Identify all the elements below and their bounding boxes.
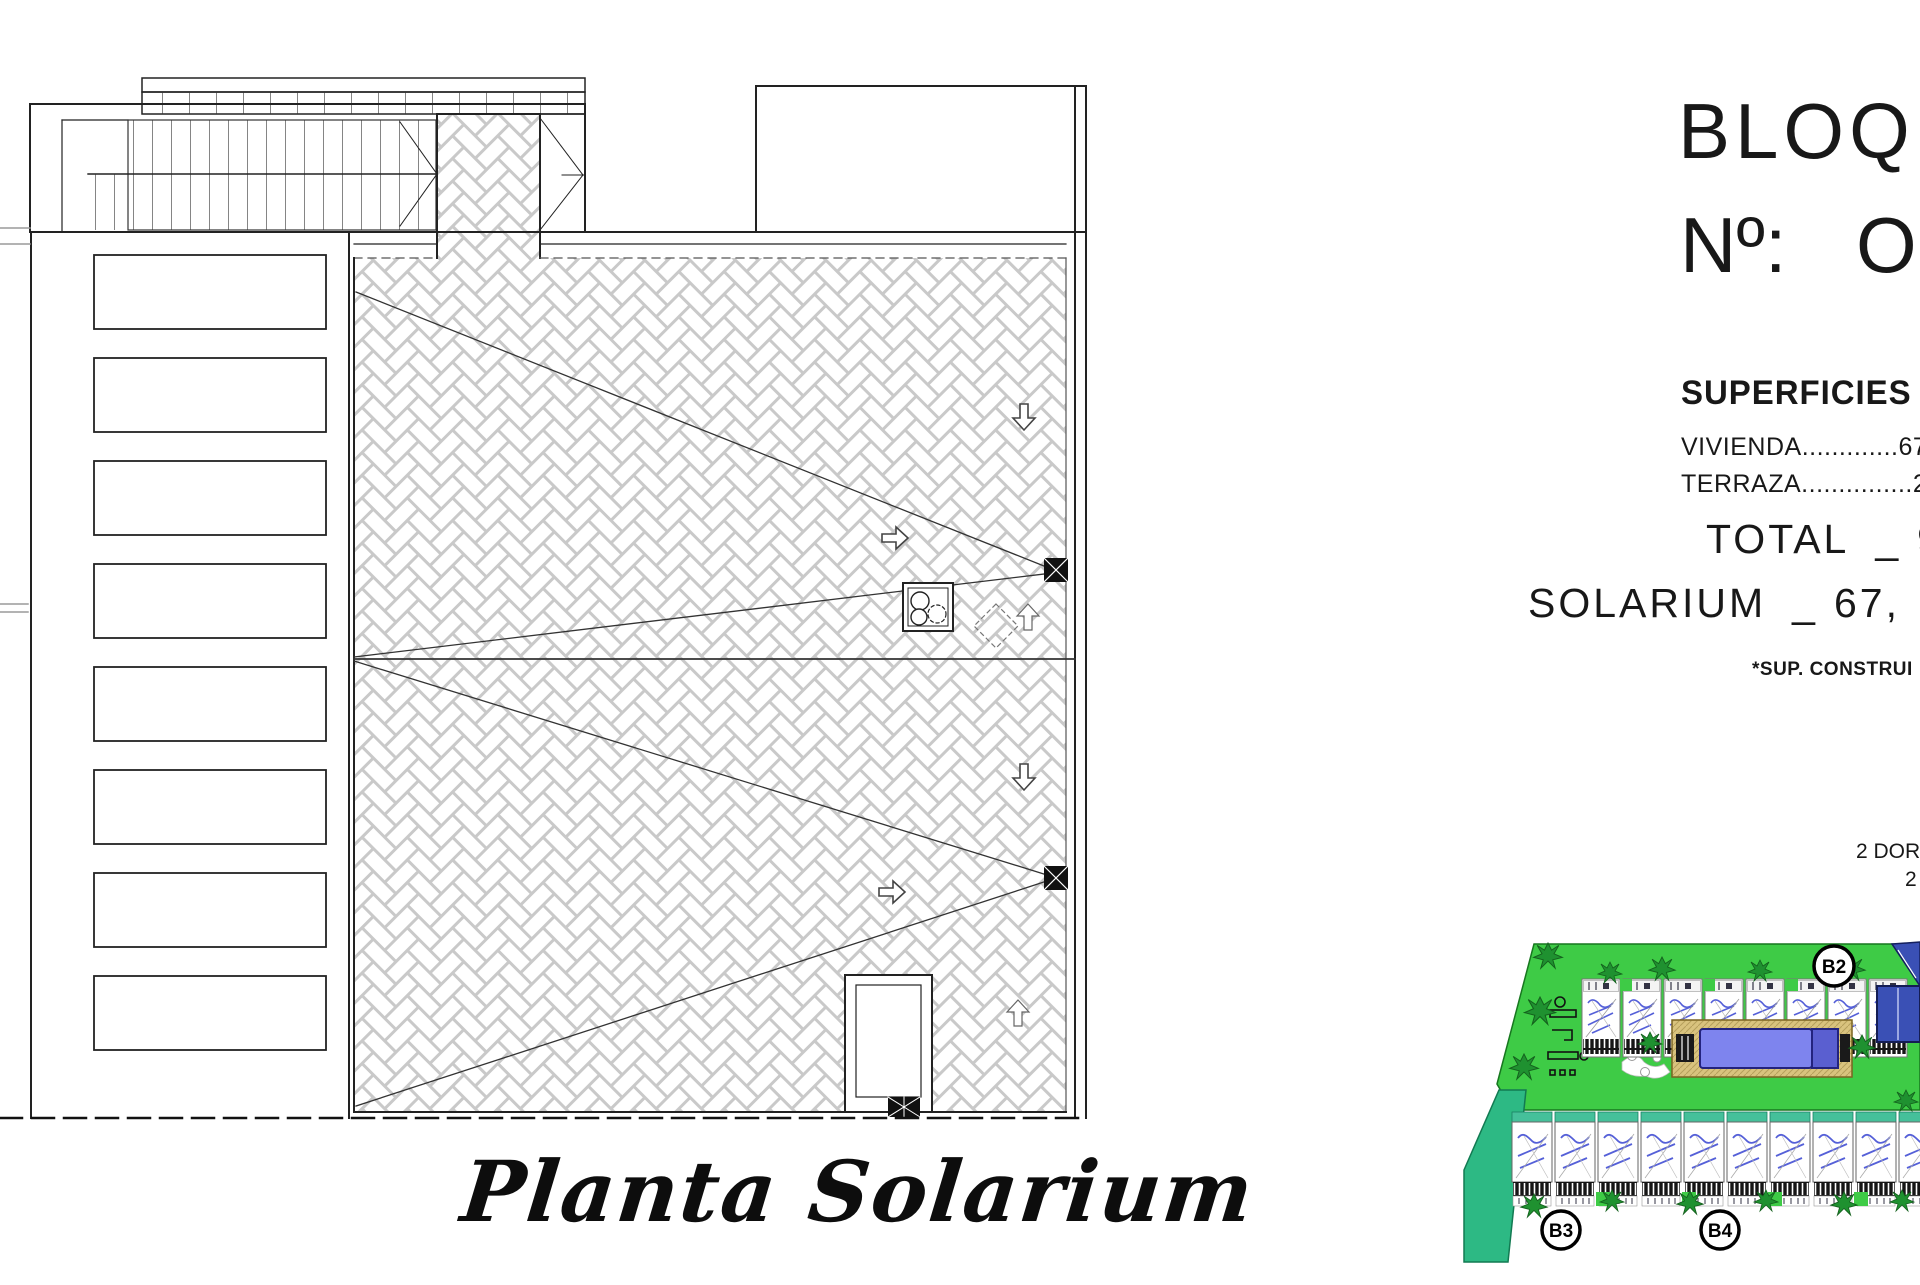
built-surface-note: *SUP. CONSTRUI (1752, 659, 1913, 681)
total-label: TOTAL (1706, 516, 1849, 563)
total-line: TOTAL _ 94 (1706, 516, 1920, 563)
roof-access-door (845, 975, 932, 1117)
superficies-heading: SUPERFICIES (1681, 374, 1912, 413)
total-separator: _ (1875, 516, 1901, 563)
louvre-panels (94, 255, 326, 1050)
roof-drain-upper (1044, 558, 1068, 582)
superficie-vivienda-line: VIVIENDA.............67 (1681, 433, 1920, 462)
housing-row-bottom (1512, 1112, 1920, 1206)
block-label-b4-text: B4 (1708, 1221, 1733, 1242)
dormitorios-line-2: 2 (1905, 868, 1917, 892)
plan-canvas: B2 B3 B4 (0, 0, 1920, 1280)
navy-building (1877, 986, 1920, 1042)
solarium-label: SOLARIUM (1528, 580, 1766, 627)
pool-area (1672, 1020, 1852, 1077)
bloque-title: BLOQ (1678, 86, 1915, 177)
vent-skylight (903, 583, 953, 631)
bloque-number-label: Nº: (1680, 200, 1787, 291)
site-plan: B2 B3 B4 (1464, 942, 1920, 1262)
tower-outline (756, 86, 1086, 232)
superficie-terraza-line: TERRAZA...............27 (1681, 470, 1920, 499)
pool-water (1700, 1029, 1812, 1068)
block-label-b2: B2 (1814, 946, 1854, 986)
dormitorios-line-1: 2 DORM (1856, 840, 1920, 864)
chimney-shaft-tiling (437, 114, 540, 264)
roof-plan-drawing (0, 78, 1086, 1118)
leader-marks (0, 228, 30, 612)
solarium-line: SOLARIUM _ 67, (1528, 580, 1900, 627)
roof-drain-lower (1044, 866, 1068, 890)
plan-sheet: { "plan": { "caption": "Planta Solarium"… (0, 0, 1920, 1280)
roof-terrace-tiling (354, 258, 1066, 1112)
block-label-b4: B4 (1701, 1211, 1739, 1249)
block-label-b3-text: B3 (1549, 1221, 1573, 1242)
bloque-number-value: O (1856, 200, 1917, 291)
block-label-b3: B3 (1542, 1211, 1580, 1249)
plan-caption: Planta Solarium (457, 1142, 1260, 1241)
solarium-value: 67, (1834, 580, 1900, 627)
solarium-separator: _ (1792, 580, 1818, 627)
block-label-b2-text: B2 (1822, 957, 1846, 978)
